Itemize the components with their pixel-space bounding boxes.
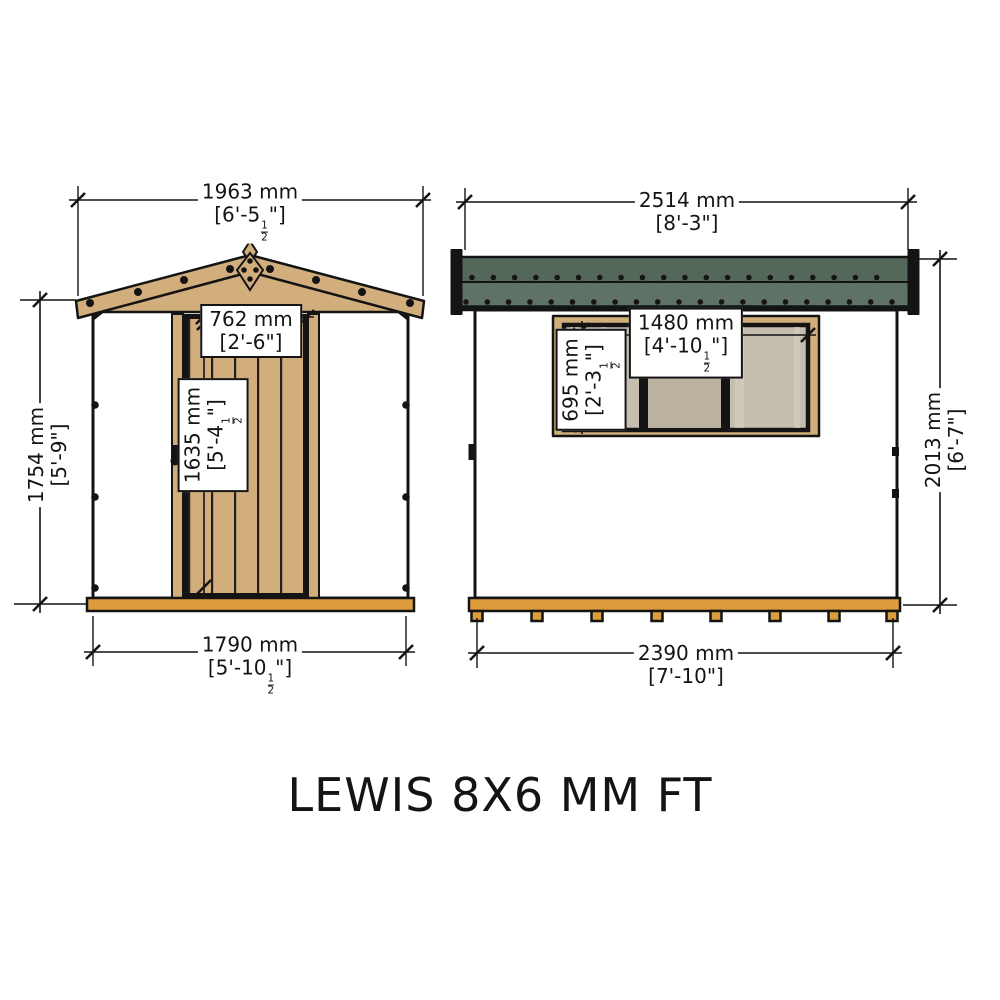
dim-window-width: 1480 mm [4'-1012"] <box>629 308 743 379</box>
floor-bearers <box>472 611 898 621</box>
dim-value-mm: 2514 mm <box>639 189 735 212</box>
dim-window-height: 695 mm [2'-312"] <box>556 329 627 431</box>
dim-value-ft: [6'-512"] <box>202 204 298 244</box>
shed-dimension-diagram: 1963 mm [6'-512"] 2514 mm [8'-3"] 1754 m… <box>0 0 1000 1000</box>
dim-value-mm: 1480 mm <box>638 312 734 335</box>
front-floor-base <box>87 598 414 611</box>
side-floor-base <box>469 598 900 611</box>
dim-value-mm: 1963 mm <box>202 181 298 204</box>
dim-value-mm: 2390 mm <box>638 642 734 665</box>
dim-front-roof-width: 1963 mm [6'-512"] <box>198 181 302 244</box>
dim-door-height: 1635 mm [5'-412"] <box>178 378 249 492</box>
shed-technical-drawing <box>0 0 1000 1000</box>
dim-value-mm: 2013 mm <box>922 392 945 488</box>
dim-value-ft: [4'-1012"] <box>638 335 734 375</box>
side-elevation <box>451 188 958 668</box>
door-jamb-right <box>308 314 319 598</box>
dim-side-roof-width: 2514 mm [8'-3"] <box>635 189 739 235</box>
dim-value-ft: [7'-10"] <box>638 665 734 688</box>
dim-value-ft: [6'-7"] <box>945 392 968 488</box>
dim-value-mm: 1635 mm <box>182 387 205 483</box>
dim-value-ft: [8'-3"] <box>639 212 735 235</box>
dim-value-mm: 762 mm <box>209 308 293 331</box>
roof-end-cap-right <box>908 249 920 315</box>
dim-side-base-width: 2390 mm [7'-10"] <box>634 642 738 688</box>
dim-value-ft: [5'-9"] <box>48 407 71 503</box>
dim-value-ft: [2'-6"] <box>209 331 293 354</box>
dim-value-ft: [5'-412"] <box>205 387 245 483</box>
dim-value-mm: 1754 mm <box>25 407 48 503</box>
dim-value-mm: 695 mm <box>560 338 583 422</box>
dim-value-mm: 1790 mm <box>202 634 298 657</box>
dim-value-ft: [2'-312"] <box>583 338 623 422</box>
dim-front-base-width: 1790 mm [5'-1012"] <box>198 634 302 697</box>
product-title: LEWIS 8X6 MM FT <box>284 770 717 820</box>
roof-end-cap-left <box>451 249 463 315</box>
dim-side-total-height: 2013 mm [6'-7"] <box>922 388 968 492</box>
dim-front-wall-height: 1754 mm [5'-9"] <box>25 403 71 507</box>
side-roof <box>451 249 920 315</box>
side-door-handle-edge <box>469 444 477 460</box>
dim-value-ft: [5'-1012"] <box>202 657 298 697</box>
dim-door-width: 762 mm [2'-6"] <box>200 304 302 358</box>
